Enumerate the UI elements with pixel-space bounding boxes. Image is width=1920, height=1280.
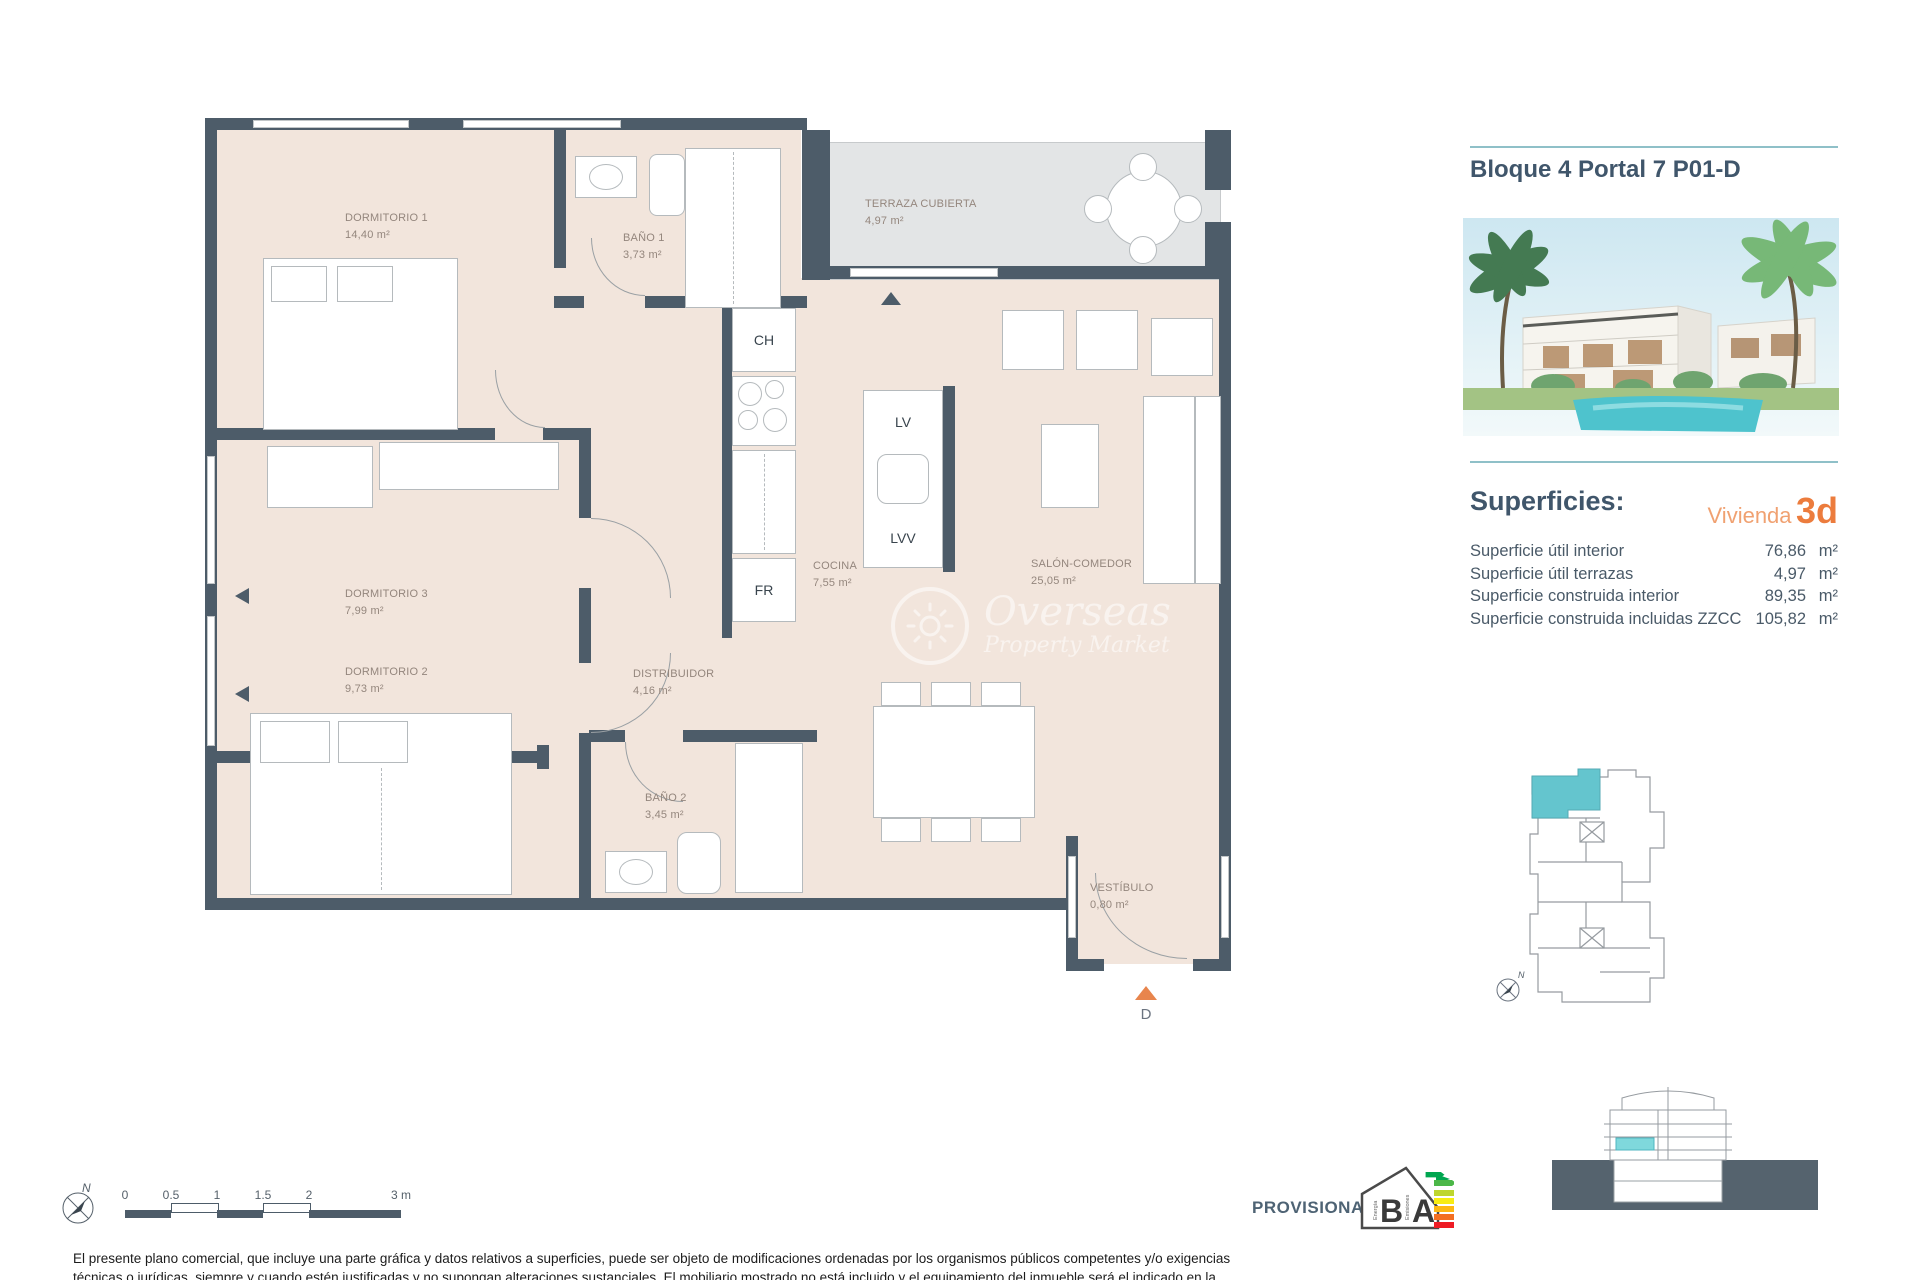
room-label-cocina: COCINA7,55 m² bbox=[813, 558, 857, 592]
wall-segment bbox=[1193, 959, 1219, 971]
scale-label: 1 bbox=[214, 1188, 221, 1202]
furniture bbox=[881, 682, 921, 706]
vivienda-value: 3d bbox=[1796, 490, 1838, 531]
furniture bbox=[877, 454, 929, 504]
wall-segment bbox=[943, 386, 955, 572]
watermark-line1: Overseas bbox=[984, 592, 1171, 632]
appliance-label-lv: LV bbox=[863, 394, 943, 450]
table-row: Superficie útil terrazas4,97m² bbox=[1470, 563, 1838, 586]
energy-certificate-icon: B A Energía Emisiones bbox=[1350, 1162, 1454, 1234]
scale-segment bbox=[217, 1210, 263, 1218]
fixture bbox=[1129, 153, 1157, 181]
fixture bbox=[1084, 195, 1112, 223]
furniture bbox=[337, 266, 393, 302]
furniture bbox=[271, 266, 327, 302]
fixture bbox=[738, 382, 762, 406]
property-rendering bbox=[1463, 218, 1839, 436]
terrace-access-arrow-icon bbox=[881, 292, 901, 305]
scale-label: 1.5 bbox=[255, 1188, 272, 1202]
wall-segment bbox=[579, 733, 591, 910]
key-plan: N bbox=[1490, 752, 1710, 1020]
window bbox=[253, 120, 409, 128]
north-compass-icon: N bbox=[1497, 970, 1525, 1001]
svg-text:N: N bbox=[82, 1181, 91, 1195]
energy-letter-a: A bbox=[1412, 1193, 1435, 1229]
window bbox=[850, 268, 998, 277]
room-label-bano1: BAÑO 13,73 m² bbox=[623, 230, 665, 264]
entrance-arrow-icon bbox=[1135, 986, 1157, 1000]
scale-segment bbox=[171, 1203, 219, 1213]
energy-word-energia: Energía bbox=[1373, 1200, 1379, 1220]
fixture bbox=[589, 164, 623, 190]
furniture bbox=[677, 832, 721, 894]
superficies-heading: Superficies: bbox=[1470, 486, 1625, 517]
wall-segment bbox=[683, 730, 817, 742]
room-label-bano2: BAÑO 23,45 m² bbox=[645, 790, 687, 824]
sun-logo-icon bbox=[890, 586, 970, 666]
furniture bbox=[981, 818, 1021, 842]
room-label-vestibulo: VESTÍBULO0,80 m² bbox=[1090, 880, 1154, 914]
entrance-label: D bbox=[1135, 1006, 1157, 1023]
appliance-label-ch: CH bbox=[732, 308, 796, 372]
fixture bbox=[738, 410, 758, 430]
building-elevation bbox=[1552, 1082, 1818, 1238]
scale-label: 2 bbox=[306, 1188, 313, 1202]
wall-segment bbox=[579, 588, 591, 663]
furniture bbox=[1151, 318, 1213, 376]
room-label-distribuidor: DISTRIBUIDOR4,16 m² bbox=[633, 666, 714, 700]
table-row: Superficie construida interior89,35m² bbox=[1470, 585, 1838, 608]
balcony-arrow-icon bbox=[235, 686, 249, 702]
watermark-line2: Property Market bbox=[984, 632, 1171, 661]
wall-segment bbox=[554, 296, 584, 308]
window bbox=[207, 456, 215, 584]
wall-segment bbox=[805, 898, 1066, 910]
highlighted-floor-unit bbox=[1616, 1138, 1654, 1150]
furniture-line bbox=[381, 768, 382, 890]
page-title: Bloque 4 Portal 7 P01-D bbox=[1470, 156, 1741, 184]
furniture bbox=[1143, 396, 1195, 584]
furniture bbox=[1002, 310, 1064, 370]
furniture bbox=[1076, 310, 1138, 370]
wall-segment bbox=[1078, 959, 1104, 971]
wall-segment bbox=[685, 118, 807, 130]
scale-bar: 0 0.5 1 1.5 2 3 m bbox=[125, 1188, 425, 1222]
room-label-terraza: TERRAZA CUBIERTA4,97 m² bbox=[865, 196, 977, 230]
appliance-label-lvv: LVV bbox=[863, 510, 943, 566]
fixture bbox=[619, 859, 653, 885]
window bbox=[463, 120, 621, 128]
furniture-line bbox=[764, 454, 765, 550]
furniture bbox=[1195, 396, 1221, 584]
furniture bbox=[931, 682, 971, 706]
wall-segment bbox=[543, 428, 579, 440]
wall-segment bbox=[722, 308, 732, 638]
furniture-line bbox=[733, 152, 734, 304]
furniture bbox=[267, 446, 373, 508]
floor-plan: D DORMITORIO 114,40 m² BAÑO 13,73 m² TER… bbox=[205, 118, 1240, 978]
window bbox=[1221, 856, 1229, 938]
fixture bbox=[1129, 236, 1157, 264]
room-label-salon: SALÓN-COMEDOR25,05 m² bbox=[1031, 556, 1132, 590]
furniture bbox=[735, 743, 803, 893]
energy-word-emisiones: Emisiones bbox=[1405, 1194, 1411, 1220]
surface-table: Superficie útil interior76,86m² Superfic… bbox=[1470, 540, 1838, 630]
wall-segment bbox=[579, 428, 591, 518]
wall-segment bbox=[1205, 130, 1231, 190]
furniture bbox=[649, 154, 685, 216]
north-label: N bbox=[1518, 970, 1525, 980]
wall-segment bbox=[205, 898, 817, 910]
wall-segment bbox=[802, 130, 830, 280]
page: D DORMITORIO 114,40 m² BAÑO 13,73 m² TER… bbox=[0, 0, 1920, 1280]
wall-segment bbox=[554, 120, 566, 268]
energy-letter-b: B bbox=[1380, 1193, 1403, 1229]
fixture bbox=[763, 408, 787, 432]
scale-segment bbox=[309, 1210, 401, 1218]
furniture bbox=[379, 442, 559, 490]
north-compass-icon: N bbox=[58, 1180, 108, 1228]
scale-label: 0.5 bbox=[163, 1188, 180, 1202]
fixture bbox=[1174, 195, 1202, 223]
furniture bbox=[260, 721, 330, 763]
window bbox=[1068, 856, 1076, 938]
furniture bbox=[881, 818, 921, 842]
appliance-label-fr: FR bbox=[732, 558, 796, 622]
window bbox=[207, 616, 215, 746]
room-label-dormitorio2: DORMITORIO 29,73 m² bbox=[345, 664, 428, 698]
table-row: Superficie construida incluidas ZZCC105,… bbox=[1470, 608, 1838, 631]
furniture bbox=[873, 706, 1035, 818]
balcony-arrow-icon bbox=[235, 588, 249, 604]
room-label-dormitorio3: DORMITORIO 37,99 m² bbox=[345, 586, 428, 620]
furniture bbox=[981, 682, 1021, 706]
scale-label: 0 bbox=[122, 1188, 129, 1202]
scale-segment bbox=[125, 1210, 171, 1218]
furniture bbox=[1041, 424, 1099, 508]
watermark: Overseas Property Market bbox=[890, 586, 1171, 666]
wall-segment bbox=[537, 745, 549, 769]
scale-segment bbox=[263, 1203, 311, 1213]
furniture bbox=[338, 721, 408, 763]
vivienda-badge: Vivienda 3d bbox=[1650, 490, 1838, 532]
disclaimer-text: El presente plano comercial, que incluye… bbox=[73, 1250, 1363, 1280]
scale-label: 3 m bbox=[391, 1188, 411, 1202]
vivienda-label: Vivienda bbox=[1708, 503, 1792, 528]
fixture bbox=[765, 380, 784, 399]
furniture bbox=[931, 818, 971, 842]
room-label-dormitorio1: DORMITORIO 114,40 m² bbox=[345, 210, 428, 244]
table-row: Superficie útil interior76,86m² bbox=[1470, 540, 1838, 563]
divider-middle bbox=[1470, 461, 1838, 463]
divider-top bbox=[1470, 146, 1838, 148]
